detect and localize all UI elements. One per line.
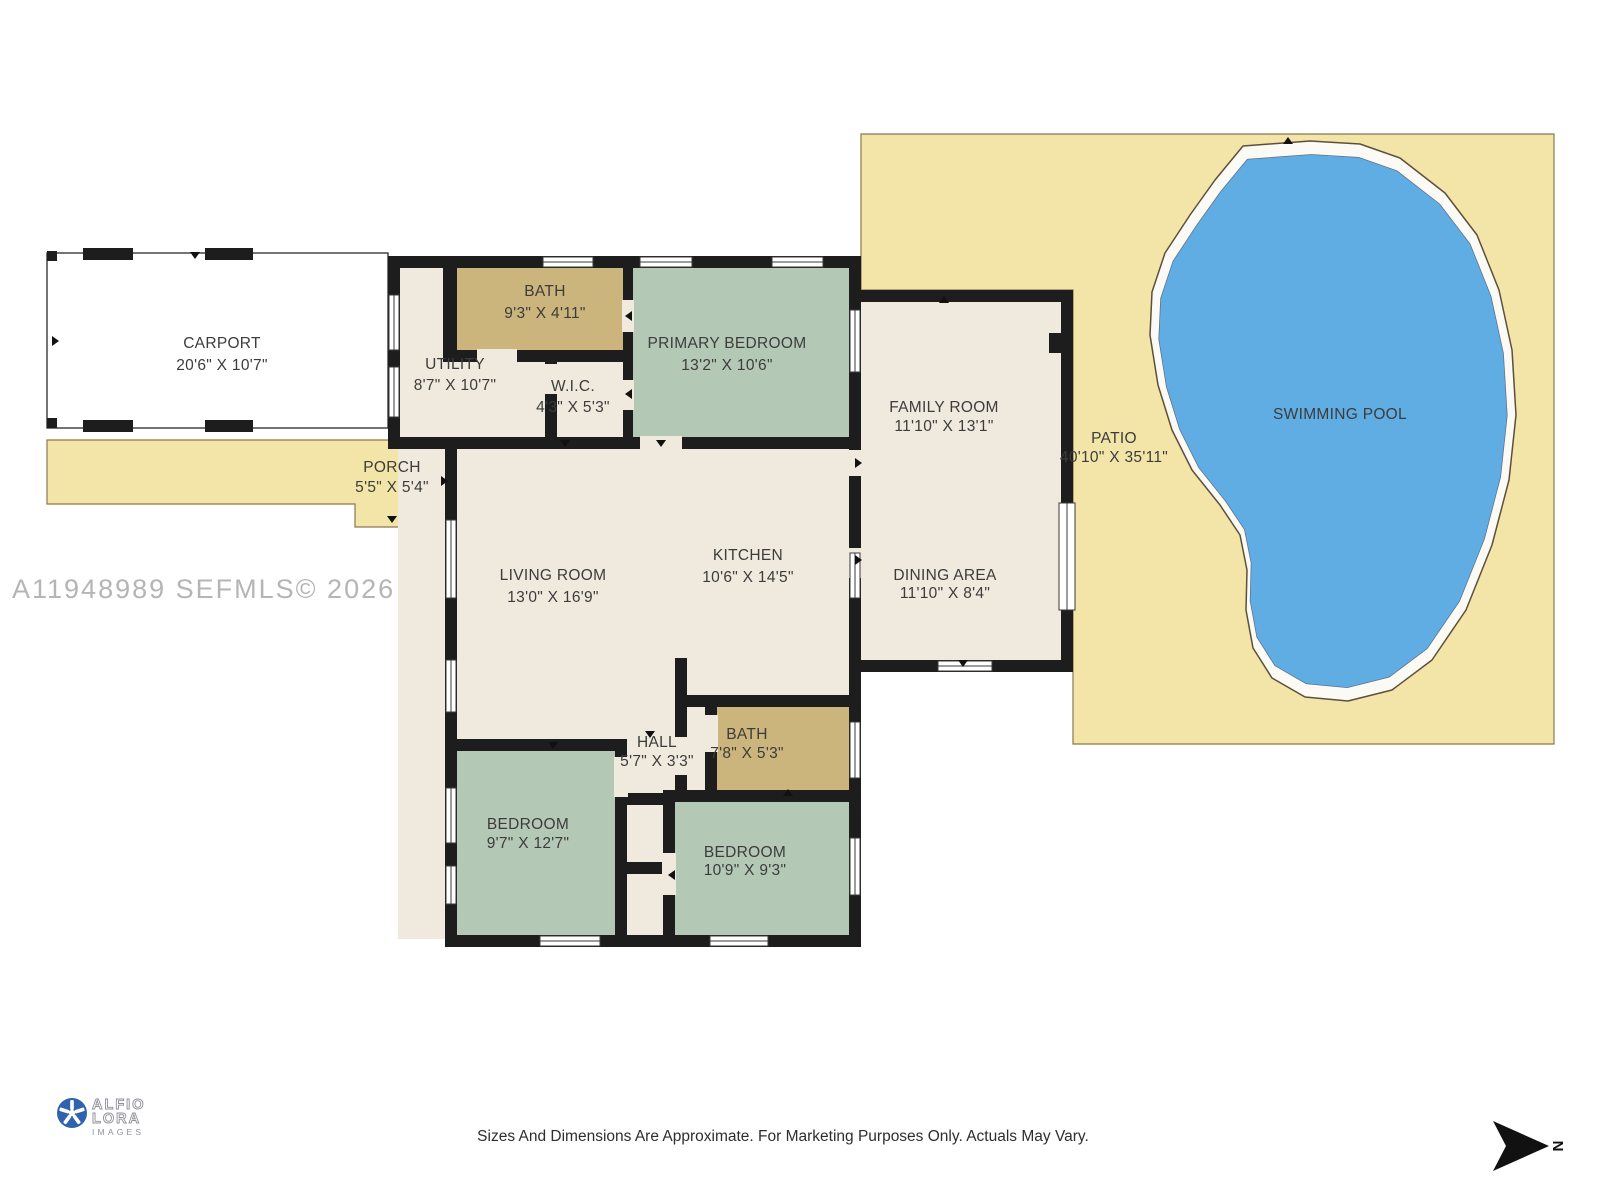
living-room-label: LIVING ROOM	[500, 567, 607, 584]
porch-label: PORCH	[363, 459, 420, 476]
logo-text-line3: IMAGES	[92, 1127, 144, 1137]
mls-watermark: A11948989 SEFMLS© 2026	[12, 574, 395, 604]
logo-text-line2: LORA	[92, 1111, 141, 1127]
bath2-label: BATH	[726, 726, 767, 743]
alfio-lora-logo: ALFIO LORA IMAGES	[57, 1097, 146, 1137]
wic-dims: 4'3" X 5'3"	[536, 399, 610, 416]
bedroom-right-dims: 10'9" X 9'3"	[704, 862, 787, 879]
utility-label: UTILITY	[425, 356, 485, 373]
floor-plan-page: CARPORT 20'6" X 10'7" BATH 9'3" X 4'11" …	[0, 0, 1600, 1200]
dining-area-dims: 11'10" X 8'4"	[900, 585, 990, 602]
north-compass: N	[1493, 1121, 1566, 1171]
kitchen-dims: 10'6" X 14'5"	[702, 569, 794, 586]
bath1-dims: 9'3" X 4'11"	[504, 305, 585, 322]
bath2-dims: 7'8" X 5'3"	[710, 745, 784, 762]
family-room-dims: 11'10" X 13'1"	[894, 418, 993, 435]
living-room-dims: 13'0" X 16'9"	[507, 589, 599, 606]
primary-bedroom-floor	[633, 268, 849, 439]
primary-bedroom-label: PRIMARY BEDROOM	[648, 335, 807, 352]
patio-dims: 40'10" X 35'11"	[1060, 449, 1168, 466]
wic-label: W.I.C.	[551, 378, 595, 395]
family-room-label: FAMILY ROOM	[889, 399, 999, 416]
bedroom-left-label: BEDROOM	[487, 816, 569, 833]
kitchen-label: KITCHEN	[713, 547, 783, 564]
north-label: N	[1549, 1141, 1566, 1152]
disclaimer-text: Sizes And Dimensions Are Approximate. Fo…	[477, 1128, 1089, 1145]
patio-label: PATIO	[1091, 430, 1137, 447]
bedroom-left-dims: 9'7" X 12'7"	[487, 835, 570, 852]
hall-dims: 5'7" X 3'3"	[620, 753, 694, 770]
carport-dims: 20'6" X 10'7"	[176, 357, 268, 374]
swimming-pool-label: SWIMMING POOL	[1273, 406, 1407, 423]
utility-dims: 8'7" X 10'7"	[414, 377, 497, 394]
porch-dims: 5'5" X 5'4"	[355, 479, 429, 496]
primary-bedroom-dims: 13'2" X 10'6"	[681, 357, 773, 374]
carport-label: CARPORT	[183, 335, 261, 352]
bedroom-right-label: BEDROOM	[704, 844, 786, 861]
dining-area-label: DINING AREA	[893, 567, 997, 584]
floor-plan-svg: CARPORT 20'6" X 10'7" BATH 9'3" X 4'11" …	[0, 0, 1600, 1200]
bath1-label: BATH	[524, 283, 565, 300]
family-block-floor	[855, 296, 1067, 666]
hall-label: HALL	[637, 734, 677, 751]
north-arrow-icon	[1493, 1121, 1549, 1171]
